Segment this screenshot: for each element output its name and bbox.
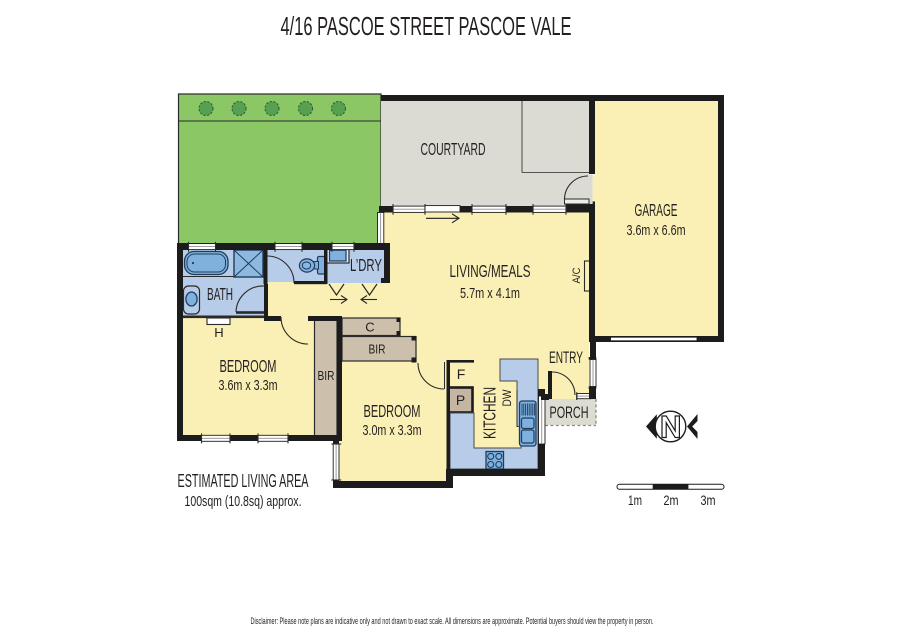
svg-text:F: F [457, 366, 466, 382]
svg-text:C: C [365, 320, 374, 335]
svg-text:BEDROOM: BEDROOM [220, 356, 277, 376]
svg-text:ENTRY: ENTRY [549, 349, 583, 367]
svg-text:2m: 2m [664, 492, 679, 508]
svg-text:4/16 PASCOE STREET PASCOE VALE: 4/16 PASCOE STREET PASCOE VALE [281, 11, 572, 41]
svg-text:BEDROOM: BEDROOM [364, 401, 421, 421]
svg-text:L’DRY: L’DRY [350, 255, 382, 275]
svg-text:3.6m x 6.6m: 3.6m x 6.6m [627, 222, 686, 239]
svg-text:Disclaimer: Please note plans: Disclaimer: Please note plans are indica… [251, 616, 654, 627]
svg-text:COURTYARD: COURTYARD [421, 139, 486, 159]
svg-text:BATH: BATH [207, 284, 233, 304]
svg-text:100sqm (10.8sq) approx.: 100sqm (10.8sq) approx. [185, 493, 302, 510]
svg-text:LIVING/MEALS: LIVING/MEALS [450, 261, 531, 281]
svg-text:ESTIMATED LIVING AREA: ESTIMATED LIVING AREA [178, 471, 309, 491]
svg-text:GARAGE: GARAGE [635, 200, 678, 220]
svg-text:KITCHEN: KITCHEN [480, 387, 500, 439]
svg-text:A/C: A/C [571, 267, 583, 283]
svg-text:3.6m x 3.3m: 3.6m x 3.3m [219, 377, 278, 394]
svg-text:H: H [214, 325, 223, 340]
svg-text:3m: 3m [701, 492, 716, 508]
svg-text:PORCH: PORCH [550, 404, 589, 422]
svg-text:1m: 1m [628, 492, 642, 508]
svg-text:BIR: BIR [369, 343, 386, 357]
svg-text:DW: DW [500, 389, 514, 407]
svg-text:BIR: BIR [318, 369, 335, 383]
svg-text:P: P [456, 392, 465, 408]
svg-text:5.7m x 4.1m: 5.7m x 4.1m [460, 285, 520, 302]
svg-text:3.0m x 3.3m: 3.0m x 3.3m [363, 422, 422, 439]
